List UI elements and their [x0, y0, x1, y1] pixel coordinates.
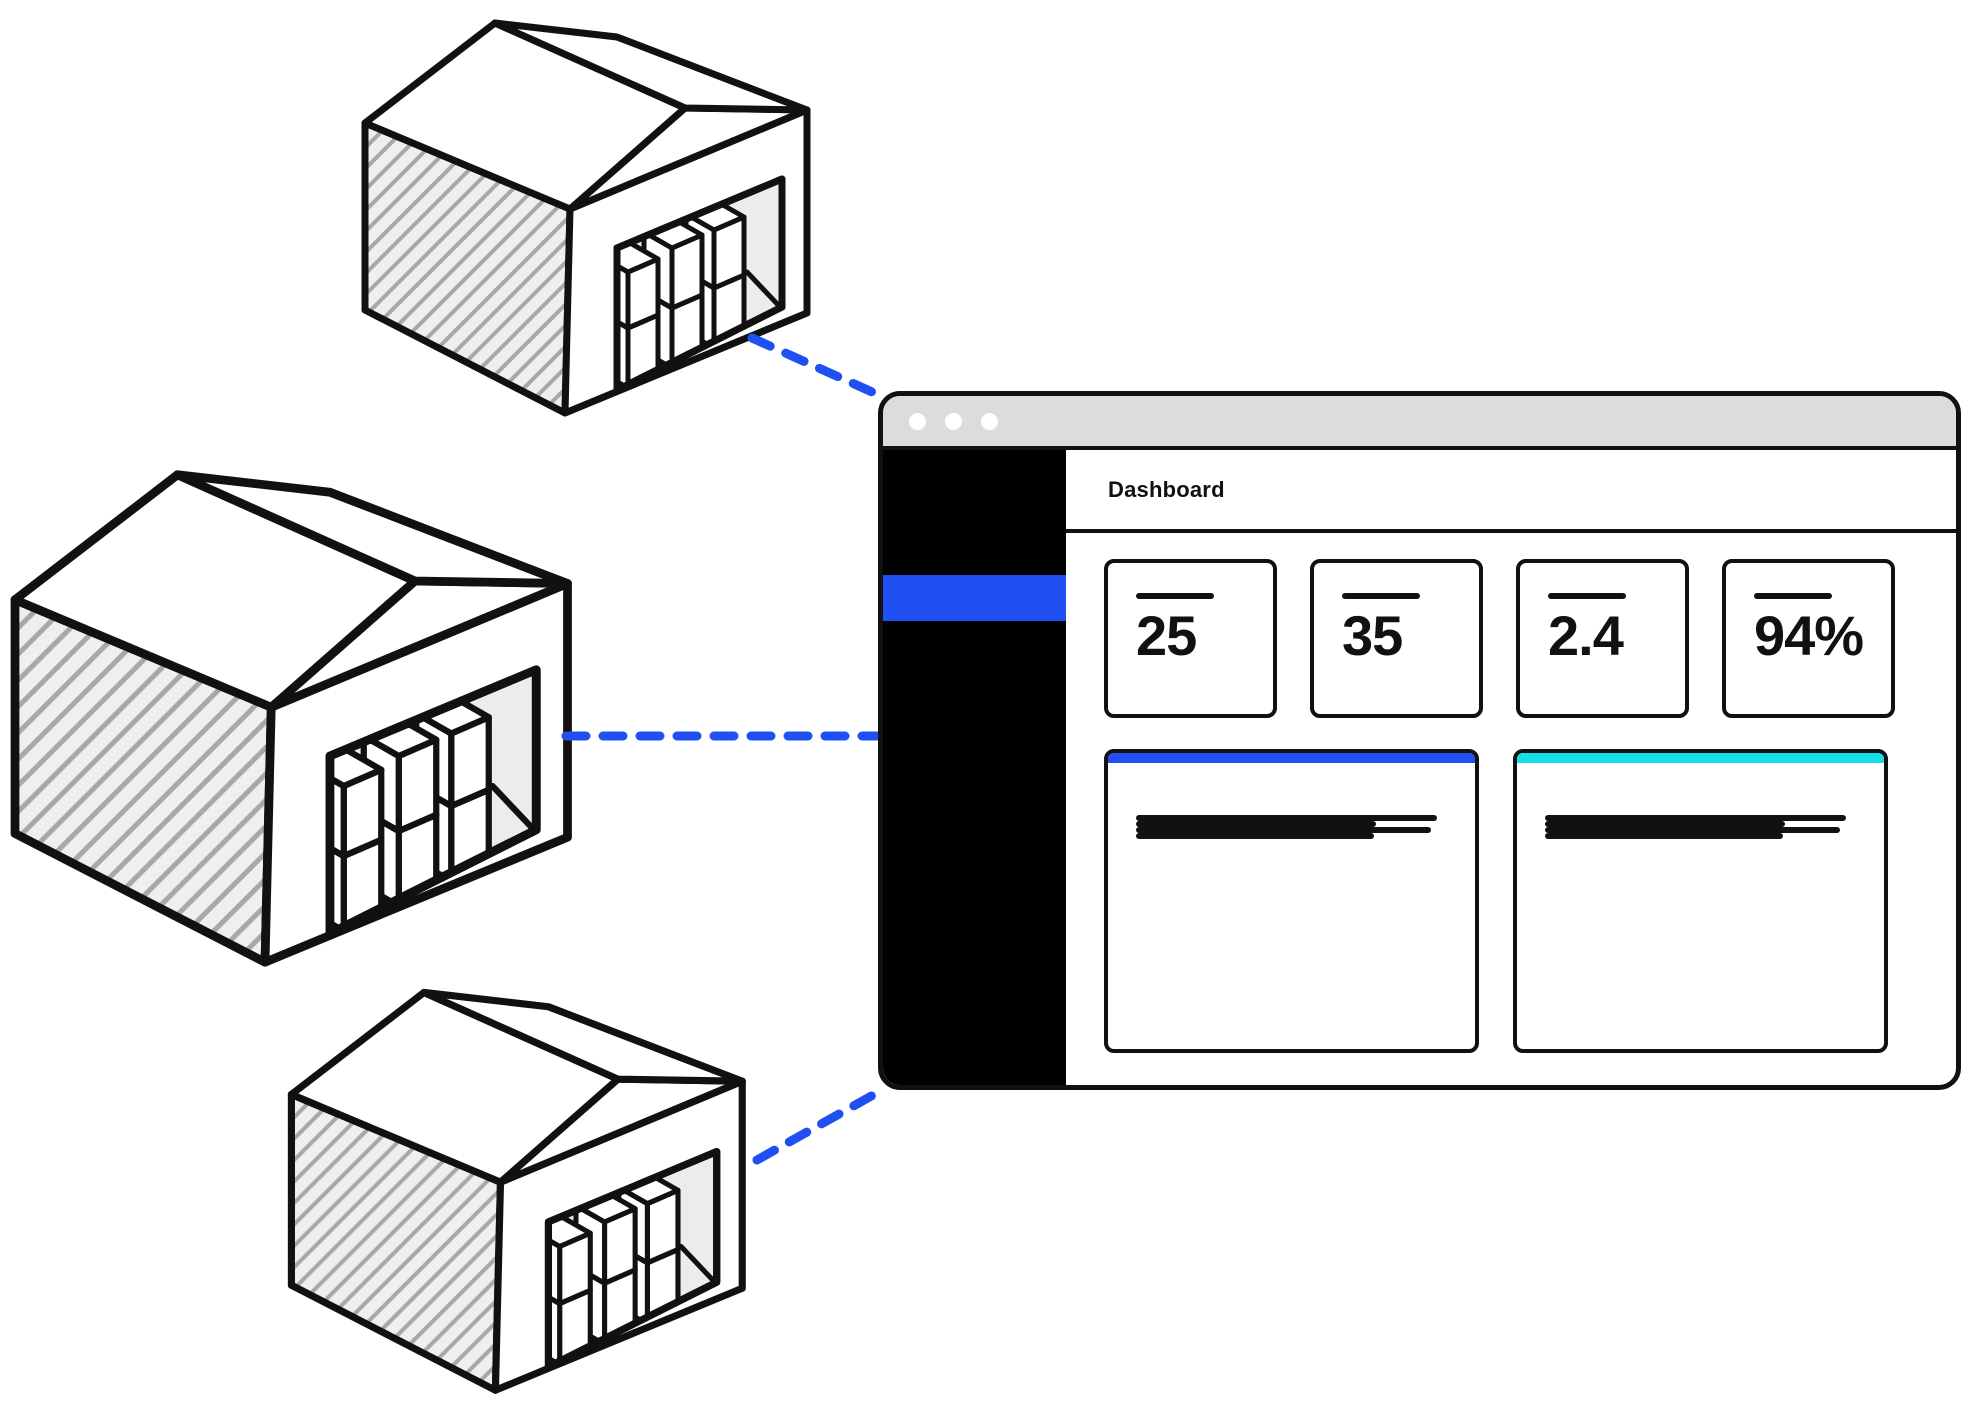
stat-card: 35 [1310, 559, 1483, 718]
panel-card [1513, 749, 1888, 1053]
skeleton-line [1545, 833, 1783, 839]
warehouse-illustration-bottom [291, 992, 742, 1390]
panel-card [1104, 749, 1479, 1053]
dashboard-content: 25 35 2.4 94% [1066, 533, 1956, 1085]
stat-label-placeholder [1548, 593, 1626, 599]
panel-accent-bar [1517, 753, 1884, 763]
connector-line-top [752, 338, 881, 396]
stat-value: 35 [1342, 607, 1479, 666]
stat-label-placeholder [1342, 593, 1420, 599]
panel-skeleton [1108, 763, 1475, 839]
window-body: Dashboard 25 35 2. [883, 450, 1956, 1085]
stat-card: 94% [1722, 559, 1895, 718]
sidebar-active-item[interactable] [883, 575, 1066, 621]
stat-value: 2.4 [1548, 607, 1685, 666]
stat-value: 94% [1754, 607, 1891, 666]
sidebar-nav [883, 450, 1066, 1085]
page-title: Dashboard [1108, 477, 1225, 503]
window-titlebar [883, 396, 1956, 450]
skeleton-line [1136, 833, 1374, 839]
stat-card: 25 [1104, 559, 1277, 718]
window-control-dot[interactable] [981, 413, 998, 430]
stat-label-placeholder [1754, 593, 1832, 599]
panel-row [1104, 749, 1956, 1053]
main-area: Dashboard 25 35 2. [1066, 450, 1956, 1085]
panel-accent-bar [1108, 753, 1475, 763]
stat-label-placeholder [1136, 593, 1214, 599]
page-header: Dashboard [1066, 450, 1956, 533]
stat-card: 2.4 [1516, 559, 1689, 718]
warehouse-illustration-top [365, 23, 807, 413]
panel-skeleton [1517, 763, 1884, 839]
connector-line-bottom [757, 1090, 882, 1160]
browser-window: Dashboard 25 35 2. [878, 391, 1961, 1090]
stat-card-row: 25 35 2.4 94% [1104, 559, 1956, 718]
window-control-dot[interactable] [945, 413, 962, 430]
warehouse-illustration-middle [15, 475, 568, 963]
window-control-dot[interactable] [909, 413, 926, 430]
diagram-canvas: Dashboard 25 35 2. [0, 0, 1984, 1415]
stat-value: 25 [1136, 607, 1273, 666]
